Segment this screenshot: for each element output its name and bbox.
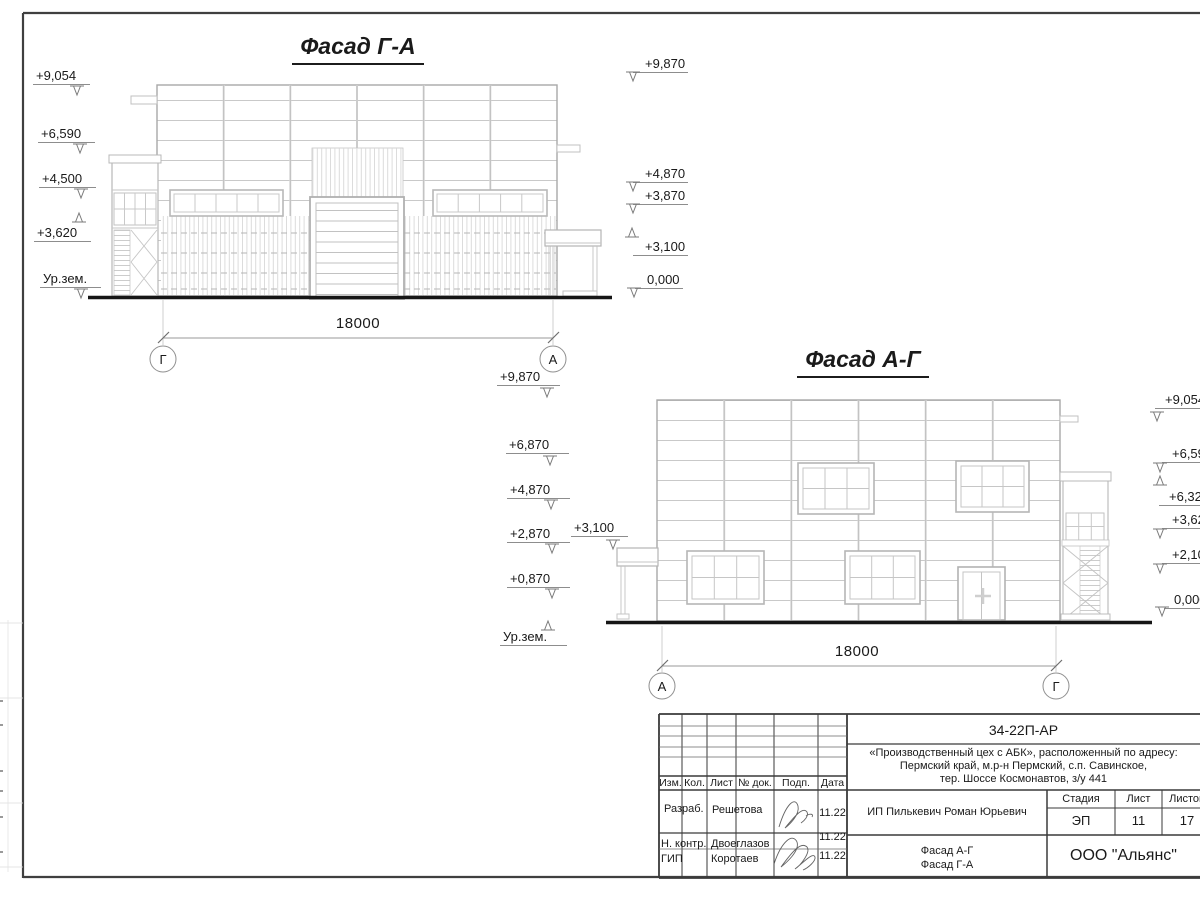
elevation-mark: +3,620: [34, 225, 91, 242]
drawing-title-line: Фасад А-Г: [847, 845, 1047, 858]
axis-bubble-right: А: [540, 352, 566, 367]
elevation-arrow-down-icon: [544, 543, 560, 555]
ground-level-mark: Ур.зем.: [500, 629, 567, 646]
col-header-kol: Кол.: [682, 777, 707, 790]
elevation-mark: +3,620: [1162, 512, 1200, 529]
col-header-data: Дата: [818, 777, 847, 790]
date-value: 11.22: [818, 850, 847, 863]
elevation-mark: 0,000: [1164, 592, 1200, 609]
elevation-arrow-down-icon: [1152, 462, 1168, 474]
person-name: Решетова: [712, 804, 762, 817]
elevation-arrow-down-icon: [72, 143, 88, 155]
date-value: 11.22: [818, 831, 847, 844]
col-header-izm: Изм.: [659, 777, 682, 790]
elevation-mark: +6,590: [38, 126, 95, 143]
role-label: ГИП: [661, 853, 683, 866]
elevation-arrow-down-icon: [73, 288, 89, 300]
elevation-arrow-down-icon: [1154, 606, 1170, 618]
sheets-header: Листов: [1162, 793, 1200, 806]
axis-bubble-right: Г: [1043, 679, 1069, 694]
dimension-label: 18000: [827, 643, 887, 660]
elevation-mark: +9,870: [497, 369, 560, 386]
elevation-arrow-down-icon: [544, 588, 560, 600]
elevation-mark: +9,870: [633, 56, 688, 73]
elevation-arrow-down-icon: [542, 455, 558, 467]
drawing-sheet: Фасад Г-А Фасад А-Г 18000 Г А 18000 А Г …: [0, 0, 1200, 900]
axis-bubble-left: Г: [150, 352, 176, 367]
elevation-mark: +2,870: [507, 526, 570, 543]
axis-bubble-left: А: [649, 679, 675, 694]
elevation-arrow-down-icon: [605, 539, 621, 551]
sheet-margin-lines: [0, 620, 23, 872]
client-name: ИП Пилькевич Роман Юрьевич: [847, 806, 1047, 819]
elevation-mark: +6,590: [1162, 446, 1200, 463]
col-header-list: Лист: [707, 777, 736, 790]
elevation-mark: +0,870: [507, 571, 570, 588]
elevation-arrow-up-icon: [1152, 474, 1168, 486]
elevation-mark: +4,870: [633, 166, 688, 183]
elevation-arrow-down-icon: [1152, 528, 1168, 540]
person-name: Двоеглазов: [711, 838, 769, 851]
elevation-arrow-down-icon: [626, 287, 642, 299]
elevation-mark: +9,054: [33, 68, 90, 85]
doc-code: 34-22П-АР: [847, 724, 1200, 737]
elevation-mark: +9,054: [1155, 392, 1200, 409]
elevation-arrow-down-icon: [625, 71, 641, 83]
elevation-mark: +4,870: [507, 482, 570, 499]
company-name: ООО "Альянс": [1047, 849, 1200, 862]
elevation-arrow-down-icon: [539, 387, 555, 399]
drawing-title-line: Фасад Г-А: [847, 859, 1047, 872]
person-name: Коротаев: [711, 853, 759, 866]
elevation-arrow-up-icon: [540, 619, 556, 631]
project-name-line: Пермский край, м.р-н Пермский, с.п. Сави…: [847, 760, 1200, 773]
elevation-arrow-down-icon: [543, 499, 559, 511]
col-header-ndok: № док.: [736, 777, 774, 790]
stage-header: Стадия: [1047, 793, 1115, 806]
sheet-header: Лист: [1115, 793, 1162, 806]
sheet-value: 11: [1115, 814, 1162, 827]
project-name-line: «Производственный цех с АБК», расположен…: [847, 747, 1200, 760]
dimension-label: 18000: [328, 315, 388, 332]
elevation-arrow-down-icon: [625, 203, 641, 215]
ground-level-mark: Ур.зем.: [40, 271, 101, 288]
date-value: 11.22: [818, 807, 847, 820]
sheets-value: 17: [1162, 814, 1200, 827]
elevation-arrow-down-icon: [73, 188, 89, 200]
elevation-mark: +4,500: [39, 171, 96, 188]
signatures: [774, 802, 815, 870]
elevation-mark: +6,320: [1159, 489, 1200, 506]
stage-value: ЭП: [1047, 814, 1115, 827]
project-name-line: тер. Шоссе Космонавтов, з/у 441: [847, 773, 1200, 786]
elevation-arrow-down-icon: [1149, 411, 1165, 423]
role-label: Разраб.: [664, 803, 704, 816]
elevation-arrow-down-icon: [69, 85, 85, 97]
elevation-mark: +3,100: [571, 520, 628, 537]
col-header-podp: Подп.: [774, 777, 818, 790]
elevation-arrow-up-icon: [71, 211, 87, 223]
elevation-mark: 0,000: [635, 272, 683, 289]
elevation-mark: +2,100: [1162, 547, 1200, 564]
elevation-mark: +6,870: [506, 437, 569, 454]
facade-ag-title: Фасад А-Г: [788, 346, 938, 378]
role-label: Н. контр.: [661, 838, 706, 851]
elevation-mark: +3,870: [633, 188, 688, 205]
facade-ga-title: Фасад Г-А: [278, 33, 438, 65]
elevation-mark: +3,100: [633, 239, 688, 256]
elevation-arrow-up-icon: [624, 226, 640, 238]
elevation-arrow-down-icon: [1152, 563, 1168, 575]
